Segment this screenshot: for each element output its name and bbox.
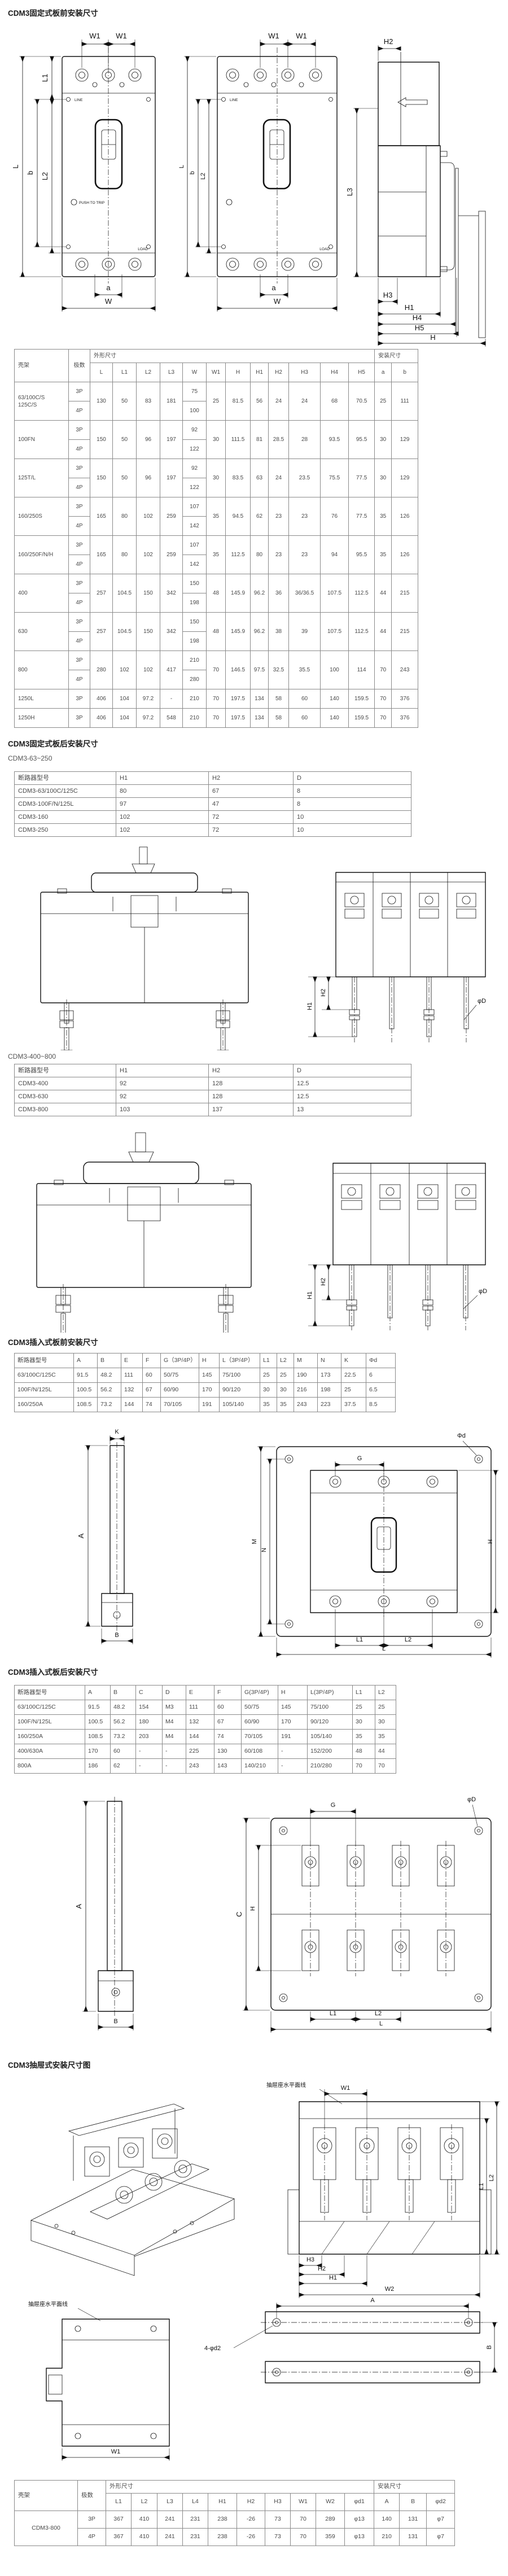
plugin-rear-drawing: A B φD	[6, 1784, 502, 2050]
cell: φ7	[427, 2511, 455, 2529]
rear-mount-63-250-table: 断路器型号H1H2DCDM3-63/100C/125C80678CDM3-100…	[14, 771, 411, 837]
cell: H2	[237, 2494, 265, 2511]
cell: φ13	[345, 2529, 374, 2546]
cell: 92	[116, 1077, 209, 1090]
cell: 44	[375, 1744, 396, 1759]
cell: 108.5	[85, 1730, 111, 1744]
cell: 140	[321, 689, 349, 709]
cell: 25	[260, 1368, 277, 1383]
rear-mount-stud-view-large: H2 H1 φD	[306, 1163, 487, 1330]
cell: 548	[160, 709, 183, 728]
cell: 25	[207, 382, 226, 421]
cell: 70	[207, 709, 226, 728]
cell: CDM3-100F/N/125L	[15, 798, 116, 811]
cell: 67	[214, 1715, 242, 1730]
cell: 406	[90, 709, 113, 728]
cell: 173	[318, 1368, 341, 1383]
cell: H	[278, 1686, 308, 1700]
rear-mount-front-view	[41, 847, 248, 1050]
cell: 80	[116, 785, 209, 798]
dim-label: a	[106, 283, 111, 292]
dim-label: L1	[330, 2010, 336, 2017]
cell: 极数	[78, 2481, 106, 2511]
cell: H3	[289, 363, 321, 382]
cell: Φd	[366, 1354, 396, 1368]
dim-label: H1	[329, 2274, 337, 2281]
cell: 150	[183, 574, 207, 593]
cell: G（3P/4P）	[161, 1354, 199, 1368]
cell: 35	[353, 1730, 375, 1744]
cell: 170	[199, 1383, 220, 1398]
cell: 243	[186, 1759, 214, 1774]
cell: 58	[269, 709, 289, 728]
cell: 6.5	[366, 1383, 396, 1398]
cell: 3P	[69, 689, 90, 709]
dim-label: b	[26, 171, 34, 174]
cell: 145	[278, 1700, 308, 1715]
cell: B	[111, 1686, 136, 1700]
cell: 243	[294, 1398, 318, 1412]
cell: 104.5	[113, 613, 137, 651]
cell: 77.5	[349, 459, 375, 497]
dim-label: L3	[345, 188, 354, 196]
cell: 410	[132, 2529, 157, 2546]
cell: 400	[15, 574, 69, 613]
cell: 160/250F/N/H	[15, 536, 69, 574]
cell: 68	[321, 382, 349, 421]
cell: 165	[90, 497, 113, 536]
cell: 96.2	[251, 613, 269, 651]
dim-label: H2	[320, 1278, 327, 1286]
fixed-front-drawing: LINE LOAD PUSH TO TRIP W1 W1 L b L1	[6, 23, 502, 347]
cell: 225	[186, 1744, 214, 1759]
cell: L3	[160, 363, 183, 382]
cell: 367	[106, 2511, 132, 2529]
dim-label: A	[370, 2297, 375, 2304]
plugin-front-table: 断路器型号ABEFG（3P/4P）HL（3P/4P）L1L2MNKΦd63/10…	[14, 1353, 396, 1412]
cell: 150	[90, 459, 113, 497]
t2-grid: 断路器型号H1H2DCDM3-63/100C/125C80678CDM3-100…	[14, 771, 411, 837]
cell: 122	[183, 478, 207, 497]
dim-label: W1	[116, 32, 127, 40]
dim-label: H3	[306, 2256, 314, 2263]
cell: 35	[375, 497, 392, 536]
cell: b	[392, 363, 418, 382]
cell: 6	[366, 1368, 396, 1383]
cell: 100	[183, 401, 207, 421]
cell: 74	[214, 1730, 242, 1744]
cell: 32.5	[269, 651, 289, 689]
section3-title: CDM3插入式板前安装尺寸	[8, 1336, 98, 1347]
cell: 3P	[69, 421, 90, 440]
dim-label: A	[77, 1533, 85, 1538]
cell: 259	[160, 536, 183, 574]
cell: 134	[251, 709, 269, 728]
cell: 142	[183, 555, 207, 574]
cell: 63/100C/S 125C/S	[15, 382, 69, 421]
cell: L(3P/4P)	[308, 1686, 353, 1700]
cell: 72	[209, 811, 294, 824]
cell: E	[121, 1354, 143, 1368]
cell: 210/280	[308, 1759, 353, 1774]
cell: 97.5	[251, 651, 269, 689]
drawer-isometric-view	[31, 2104, 234, 2276]
cell: 152/200	[308, 1744, 353, 1759]
cell: 断路器型号	[15, 1686, 85, 1700]
cell: 143	[214, 1759, 242, 1774]
cell: 97.2	[137, 709, 160, 728]
cell: 90/120	[220, 1383, 260, 1398]
cell: 73	[265, 2529, 291, 2546]
cell: 73.2	[111, 1730, 136, 1744]
load-marking: LOAD	[138, 247, 148, 251]
drawer-rail-drilling-view: A 4-φd2 B	[204, 2297, 498, 2383]
cell: 67	[143, 1383, 161, 1398]
cell: 125T/L	[15, 459, 69, 497]
cell: 129	[392, 421, 418, 459]
dim-label: Φd	[457, 1433, 466, 1439]
cell: CDM3-400	[15, 1077, 116, 1090]
rear-mount-400-800-drawing: H2 H1 φD	[6, 1129, 502, 1333]
rear-mount-front-view-large	[37, 1133, 251, 1333]
cell: 56	[251, 382, 269, 421]
cell: C	[136, 1686, 163, 1700]
cell: 70.5	[349, 382, 375, 421]
cell: 24	[269, 459, 289, 497]
cell: CDM3-160	[15, 811, 116, 824]
fixed-front-dimensions-table: 壳架极数外形尺寸安装尺寸LL1L2L3WW1HH1H2H3H4H5ab63/10…	[14, 349, 418, 728]
t4-grid: 断路器型号ABEFG（3P/4P）HL（3P/4P）L1L2MNKΦd63/10…	[14, 1353, 396, 1412]
cell: 280	[90, 651, 113, 689]
cell: 142	[183, 517, 207, 536]
cell: 112.5	[349, 613, 375, 651]
dim-label: G	[357, 1455, 362, 1462]
cell: CDM3-63/100C/125C	[15, 785, 116, 798]
cell: 25	[341, 1383, 366, 1398]
cell: 140/210	[242, 1759, 278, 1774]
push-to-trip-marking: PUSH TO TRIP	[79, 201, 104, 205]
cell: K	[341, 1354, 366, 1368]
dim-label: H1	[306, 1002, 313, 1010]
cell: A	[374, 2494, 400, 2511]
line-marking: LINE	[75, 98, 83, 102]
cell: 198	[183, 632, 207, 651]
cell: 77.5	[349, 497, 375, 536]
cell: 238	[208, 2529, 237, 2546]
dim-label: B	[486, 2345, 493, 2349]
cell: 150	[137, 574, 160, 613]
cell: 63	[251, 459, 269, 497]
cell: 241	[157, 2529, 183, 2546]
cell: 壳架	[15, 2481, 78, 2511]
dim-label: H2	[384, 37, 393, 46]
cell: 50	[113, 382, 137, 421]
cell: 231	[183, 2529, 208, 2546]
cell: 131	[400, 2511, 427, 2529]
cell: H1	[251, 363, 269, 382]
cell: 95.5	[349, 421, 375, 459]
plugin-rear-blade-view: A B	[75, 1797, 133, 2031]
cell: 70/105	[161, 1398, 199, 1412]
cell: 8.5	[366, 1398, 396, 1412]
cell: L1	[353, 1686, 375, 1700]
cell: H4	[321, 363, 349, 382]
cell: φd1	[345, 2494, 374, 2511]
cell: 74	[143, 1398, 161, 1412]
cell: 12.5	[294, 1090, 411, 1103]
cell: 140	[374, 2511, 400, 2529]
cell: 132	[186, 1715, 214, 1730]
load-marking: LOAD	[319, 247, 330, 251]
cell: 67	[209, 785, 294, 798]
cell: 289	[316, 2511, 345, 2529]
cell: 50/75	[242, 1700, 278, 1715]
cell: 35	[260, 1398, 277, 1412]
cell: 81	[251, 421, 269, 459]
cell: φ13	[345, 2511, 374, 2529]
cell: 3P	[69, 497, 90, 517]
plugin-front-drawing: K A B Φd	[6, 1423, 502, 1660]
cell: 197	[160, 421, 183, 459]
cell: 180	[136, 1715, 163, 1730]
cell: 8	[294, 798, 411, 811]
cell: -	[160, 689, 183, 709]
cell: 197	[160, 459, 183, 497]
cell: 断路器型号	[15, 772, 116, 785]
cell: 60/108	[242, 1744, 278, 1759]
cell: 62	[111, 1759, 136, 1774]
cell: 70	[207, 651, 226, 689]
cell: 210	[183, 689, 207, 709]
cell: -	[163, 1759, 186, 1774]
cell: H5	[349, 363, 375, 382]
dim-label: L2	[405, 1636, 411, 1643]
cell: L2	[137, 363, 160, 382]
plugin-rear-table: 断路器型号ABCDEFG(3P/4P)HL(3P/4P)L1L263/100C/…	[14, 1685, 396, 1774]
cell: 1250H	[15, 709, 69, 728]
cell: 28.5	[269, 421, 289, 459]
plugin-blade-view: K A B	[77, 1429, 133, 1644]
cell: W1	[207, 363, 226, 382]
dim-label: H2	[318, 2265, 326, 2272]
cell: 3P	[69, 536, 90, 555]
cell: 128	[209, 1090, 294, 1103]
cell: 100.5	[85, 1715, 111, 1730]
cell: 断路器型号	[15, 1354, 74, 1368]
cell: 800	[15, 651, 69, 689]
cell: 70	[375, 689, 392, 709]
cell: 104.5	[113, 574, 137, 613]
dim-label: L	[382, 1645, 386, 1652]
cell: CDM3-800	[15, 2511, 78, 2546]
cell: B	[98, 1354, 121, 1368]
cell: 70	[375, 1759, 396, 1774]
cell: 191	[199, 1398, 220, 1412]
dim-label: W	[105, 297, 112, 305]
dim-label: W1	[296, 32, 307, 40]
cell: 44	[375, 613, 392, 651]
section2-subtitle-b: CDM3-400~800	[8, 1053, 56, 1060]
cell: 257	[90, 574, 113, 613]
cell: 104	[113, 709, 137, 728]
cell: 216	[294, 1383, 318, 1398]
cell: A	[85, 1686, 111, 1700]
cell: 30	[207, 459, 226, 497]
cell: L2	[132, 2494, 157, 2511]
cell: 4P	[78, 2529, 106, 2546]
cell: 630	[15, 613, 69, 651]
cell: 100FN	[15, 421, 69, 459]
cell: 259	[160, 497, 183, 536]
cell: 191	[278, 1730, 308, 1744]
cell: 102	[137, 536, 160, 574]
cell: D	[294, 1064, 411, 1077]
cell: H3	[265, 2494, 291, 2511]
cell: a	[375, 363, 392, 382]
cell: 35	[207, 536, 226, 574]
dim-label: φD	[479, 1288, 487, 1295]
cell: 48.2	[98, 1368, 121, 1383]
cell: 38	[269, 613, 289, 651]
dim-label: W1	[111, 2448, 121, 2455]
cell: 壳架	[15, 350, 69, 382]
t1-grid: 壳架极数外形尺寸安装尺寸LL1L2L3WW1HH1H2H3H4H5ab63/10…	[14, 349, 418, 728]
cell: 47	[209, 798, 294, 811]
cell: F	[214, 1686, 242, 1700]
t5-grid: 断路器型号ABCDEFG(3P/4P)HL(3P/4P)L1L263/100C/…	[14, 1685, 396, 1774]
cell: 70	[291, 2529, 316, 2546]
section5-title: CDM3抽屉式安装尺寸图	[8, 2059, 90, 2070]
cell: -	[163, 1744, 186, 1759]
cell: H	[199, 1354, 220, 1368]
cell: 190	[294, 1368, 318, 1383]
cell: L3	[157, 2494, 183, 2511]
cell: 91.5	[85, 1700, 111, 1715]
cell: 103	[116, 1103, 209, 1116]
cell: 130	[214, 1744, 242, 1759]
cell: 44	[375, 574, 392, 613]
cell: 410	[132, 2511, 157, 2529]
dim-label: 4-φd2	[204, 2345, 221, 2352]
dim-label: B	[115, 1632, 119, 1639]
cell: 58	[269, 689, 289, 709]
t3-grid: 断路器型号H1H2DCDM3-4009212812.5CDM3-63092128…	[14, 1064, 411, 1116]
cell: 外形尺寸	[90, 350, 375, 363]
cell: 215	[392, 613, 418, 651]
cell: 13	[294, 1103, 411, 1116]
cell: 376	[392, 709, 418, 728]
cell: 203	[136, 1730, 163, 1744]
cell: 102	[116, 811, 209, 824]
cell: 145.9	[226, 613, 251, 651]
cell: φd2	[427, 2494, 455, 2511]
cell: 23	[269, 497, 289, 536]
cell: 25	[375, 382, 392, 421]
dim-label: H	[487, 1539, 494, 1544]
dim-label: b	[189, 171, 196, 174]
dim-label: H2	[320, 989, 327, 997]
cell: L	[90, 363, 113, 382]
breaker-front-4p-view: LINE LOAD W1 W1 L b L2	[178, 32, 337, 312]
dim-label: a	[271, 283, 276, 292]
cell: 93.5	[321, 421, 349, 459]
cell: 36/36.5	[289, 574, 321, 613]
cell: 94.5	[226, 497, 251, 536]
cell: 12.5	[294, 1077, 411, 1090]
rear-mount-stud-view: H2 H1 φD	[306, 872, 486, 1042]
cell: 4P	[69, 555, 90, 574]
cell: H1	[116, 1064, 209, 1077]
cell: 111	[186, 1700, 214, 1715]
section1-title: CDM3固定式板前安装尺寸	[8, 7, 98, 18]
cell: 197.5	[226, 709, 251, 728]
dim-label: H	[430, 333, 435, 342]
dim-label: φD	[467, 1796, 476, 1803]
cell: 安装尺寸	[374, 2481, 455, 2494]
dim-label: L1	[478, 2183, 485, 2190]
cell: 30	[353, 1715, 375, 1730]
cell: 60	[289, 709, 321, 728]
cell: 359	[316, 2529, 345, 2546]
dim-label: B	[113, 2018, 117, 2025]
dim-label: L2	[375, 2010, 382, 2017]
cell: 75	[183, 382, 207, 401]
cell: 62	[251, 497, 269, 536]
cell: 102	[137, 651, 160, 689]
dim-label: L2	[488, 2175, 495, 2181]
cell: 4P	[69, 478, 90, 497]
cell: 81.5	[226, 382, 251, 421]
cell: M4	[163, 1730, 186, 1744]
cell: 72	[209, 824, 294, 837]
dim-label: L1	[356, 1636, 363, 1643]
cell: 160/250A	[15, 1398, 74, 1412]
dim-label: L2	[200, 173, 207, 180]
cell: 114	[349, 651, 375, 689]
cell: 122	[183, 440, 207, 459]
cell: 97	[116, 798, 209, 811]
cell: 95.5	[349, 536, 375, 574]
dim-label: H5	[415, 324, 424, 332]
cell: 50	[113, 459, 137, 497]
cell: 137	[209, 1103, 294, 1116]
cell: 25	[353, 1700, 375, 1715]
cell: 144	[121, 1398, 143, 1412]
cell: G(3P/4P)	[242, 1686, 278, 1700]
drawer-type-table: 壳架极数外形尺寸安装尺寸L1L2L3L4H1H2H3W1W2φd1ABφd2CD…	[14, 2480, 455, 2546]
cell: 210	[374, 2529, 400, 2546]
cell: 48	[207, 574, 226, 613]
cell: 105/140	[220, 1398, 260, 1412]
cell: 63/100C/125C	[15, 1368, 74, 1383]
cell: 241	[157, 2511, 183, 2529]
dim-label: W2	[385, 2286, 395, 2293]
cell: 181	[160, 382, 183, 421]
cell: 70	[375, 709, 392, 728]
breaker-side-view: H2 L3 H3 H1 H4 H	[345, 37, 485, 347]
cell: 60	[214, 1700, 242, 1715]
cell: 144	[186, 1730, 214, 1744]
cell: 150	[137, 613, 160, 651]
cell: 3P	[69, 709, 90, 728]
cell: 367	[106, 2529, 132, 2546]
cell: 102	[113, 651, 137, 689]
rear-mount-63-250-drawing: H2 H1 φD	[6, 841, 502, 1050]
cell: 30	[375, 459, 392, 497]
cell: 406	[90, 689, 113, 709]
cell: 170	[278, 1715, 308, 1730]
cell: 257	[90, 613, 113, 651]
